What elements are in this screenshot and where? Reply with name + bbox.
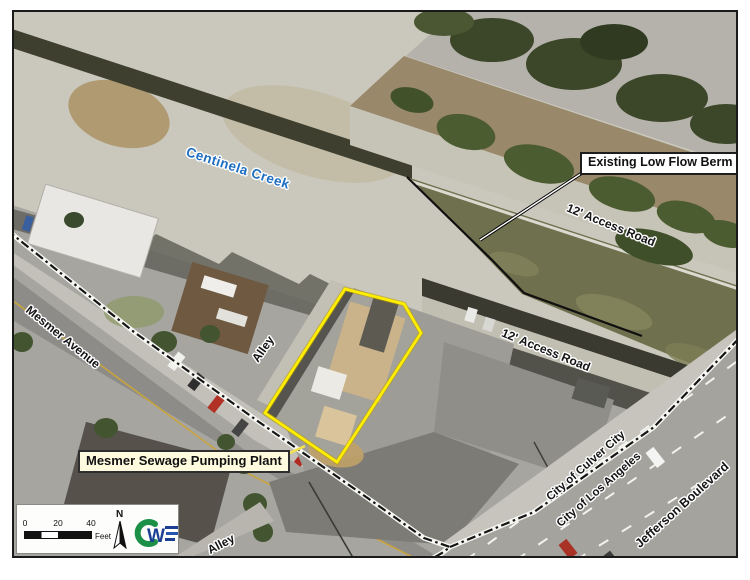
aerial-imagery (14, 12, 738, 558)
north-label: N (116, 509, 123, 520)
scale-tick-20: 20 (53, 518, 62, 528)
scale-tick-40: 40 (86, 518, 95, 528)
cwe-logo: W (131, 517, 179, 549)
legend-box: 0 20 40 Feet N W (16, 504, 179, 554)
logo-letter-w: W (147, 526, 165, 547)
north-arrow-icon (113, 521, 127, 549)
scale-tick-0: 0 (23, 518, 28, 528)
scale-unit-label: Feet (95, 532, 111, 541)
scale-bar (24, 531, 104, 541)
aerial-map: Centinela Creek 12' Access Road 12' Acce… (12, 10, 738, 558)
logo-letter-e (165, 526, 178, 541)
callout-mesmer-sewage-pumping-plant: Mesmer Sewage Pumping Plant (78, 450, 290, 473)
callout-existing-low-flow-berm: Existing Low Flow Berm (580, 152, 738, 175)
figure-page: Centinela Creek 12' Access Road 12' Acce… (0, 0, 750, 580)
